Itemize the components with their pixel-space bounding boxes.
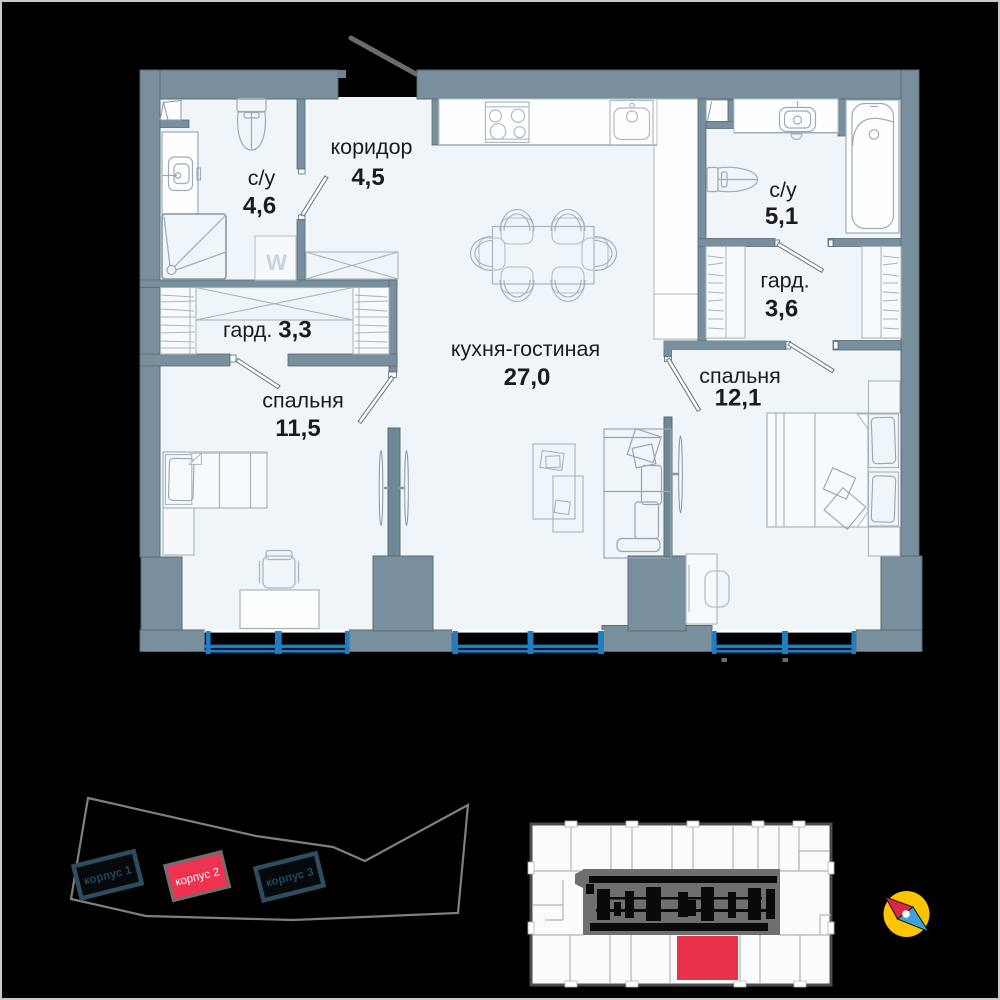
svg-text:с/у: с/у [769,178,797,202]
svg-text:спальня: спальня [262,389,344,413]
svg-text:3,6: 3,6 [765,296,798,323]
svg-text:27,0: 27,0 [504,364,551,391]
svg-text:5,1: 5,1 [765,203,798,230]
svg-text:кухня-гостиная: кухня-гостиная [451,337,600,361]
svg-text:4,6: 4,6 [243,193,276,220]
svg-text:12,1: 12,1 [715,385,762,412]
svg-text:W: W [266,250,287,275]
svg-text:коридор: коридор [330,135,412,159]
svg-text:11,5: 11,5 [275,415,320,442]
svg-text:гард.: гард. [760,269,809,293]
svg-text:4,5: 4,5 [351,164,384,191]
svg-text:с/у: с/у [248,166,276,190]
svg-text:гард. 3,3: гард. 3,3 [223,317,312,344]
